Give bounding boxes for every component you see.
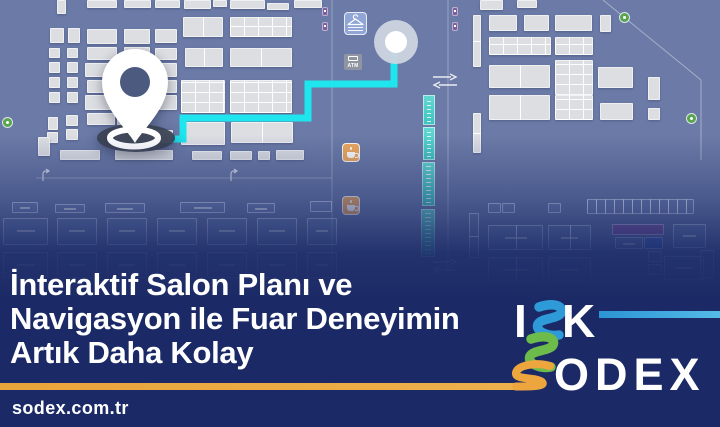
website-url[interactable]: sodex.com.tr bbox=[12, 398, 129, 419]
logo-wave-orange bbox=[516, 364, 550, 386]
logo-letters-odex: ODEX bbox=[554, 349, 706, 401]
gold-divider-line bbox=[0, 383, 516, 390]
logo-letter-k: K bbox=[562, 294, 595, 348]
promo-banner: ATM bbox=[0, 0, 720, 427]
headline: İnteraktif Salon Planı ve Navigasyon ile… bbox=[10, 268, 460, 370]
logo-letter-i: I bbox=[514, 294, 527, 348]
headline-line-3: Artık Daha Kolay bbox=[10, 336, 460, 370]
headline-line-1: İnteraktif Salon Planı ve bbox=[10, 268, 460, 302]
headline-line-2: Navigasyon ile Fuar Deneyimin bbox=[10, 302, 460, 336]
destination-marker-icon bbox=[385, 31, 407, 53]
logo-wave-blue bbox=[538, 305, 562, 336]
